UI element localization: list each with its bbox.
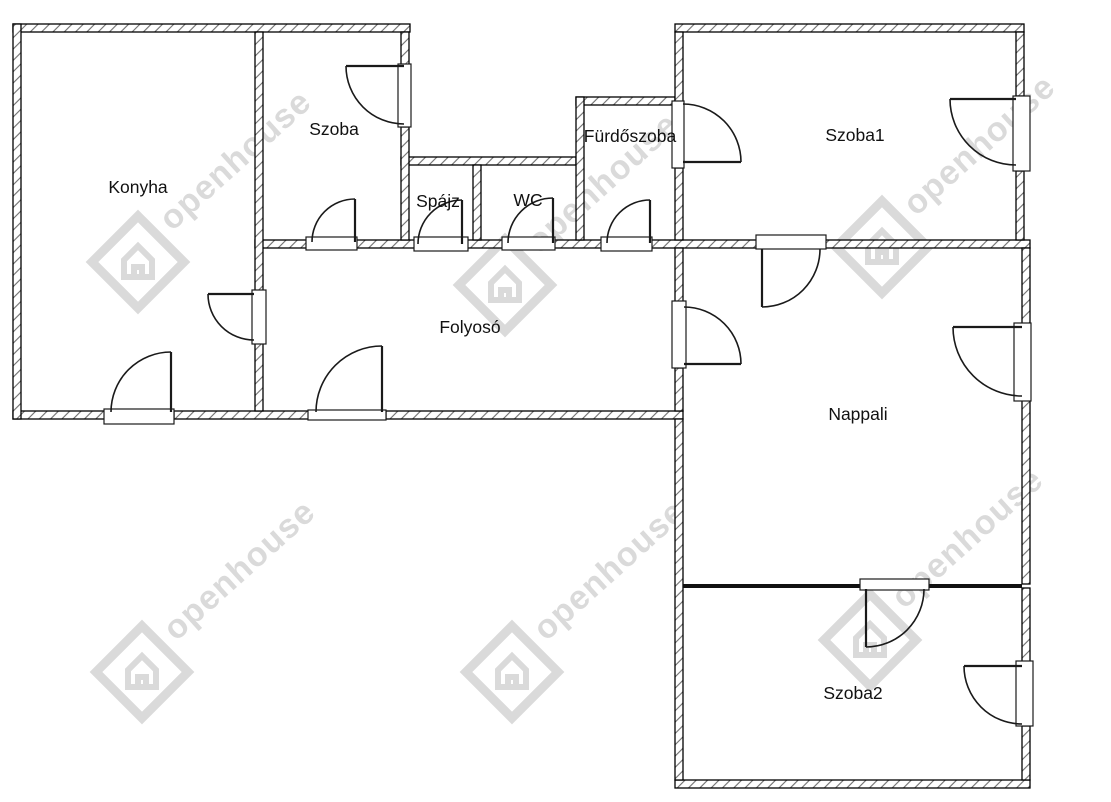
wall-right-szoba2-b [1022, 726, 1030, 780]
door-entrance [316, 346, 382, 412]
wall-bottom-konyha-a [13, 411, 105, 419]
watermark-text: openhouse [152, 82, 319, 238]
wall-szoba1-nappali [825, 240, 1030, 248]
floorplan-canvas: openhouseopenhouseopenhouseopenhouseopen… [0, 0, 1111, 802]
wall-top-furdoszoba [576, 97, 675, 105]
partition-nappali-szoba2-a [683, 584, 862, 588]
wall-folyoso-top-d [554, 240, 603, 248]
house-icon [856, 624, 884, 655]
room-label-wc: WC [513, 190, 542, 210]
door-swing-arc [683, 104, 741, 162]
floorplan-drawing: openhouseopenhouseopenhouseopenhouseopen… [0, 0, 1111, 802]
door-szoba-east [346, 66, 404, 124]
wall-folyoso-nappali-b [675, 368, 683, 411]
door-nappali-balcony [953, 327, 1022, 396]
wall-furdoszoba-szoba1-a [675, 32, 683, 102]
opening-szoba1-balcony-door [1013, 96, 1030, 171]
door-swing-arc [208, 294, 254, 340]
wall-right-szoba1-b [1016, 171, 1024, 240]
watermark: openhouse [96, 492, 323, 718]
wall-right-szoba2-a [1022, 588, 1030, 662]
opening-szoba2-balcony-door [1016, 661, 1033, 726]
wall-folyoso-top-b [356, 240, 416, 248]
wall-bottom-szoba2 [675, 780, 1030, 788]
wall-bottom-folyoso [386, 411, 683, 419]
opening-spajz-door [414, 237, 468, 251]
opening-nappali-balcony-door [1014, 323, 1031, 401]
opening-nappali-szoba2-door [860, 579, 929, 590]
opening-konyha-folyoso-door [252, 290, 266, 344]
door-folyoso-nappali [684, 307, 741, 364]
wall-folyoso-top-c [467, 240, 504, 248]
wall-left-konyha [13, 24, 21, 419]
door-swing-arc [684, 307, 741, 364]
room-label-nappali: Nappali [828, 404, 887, 424]
door-szoba1-nappali [762, 249, 820, 307]
opening-szoba-east-door [398, 64, 411, 127]
opening-szoba1-nappali-door [756, 235, 826, 249]
watermark-text: openhouse [156, 492, 323, 648]
watermark: openhouse [466, 492, 693, 718]
door-swing-arc [953, 327, 1022, 396]
room-label-konyha: Konyha [108, 177, 168, 197]
room-label-furdoszoba: Fürdőszoba [584, 126, 677, 146]
door-swing-arc [312, 199, 355, 242]
door-swing-arc [762, 249, 820, 307]
door-swing-arc [346, 66, 404, 124]
wall-szoba-spajz-b [401, 127, 409, 240]
wall-szoba-spajz-a [401, 32, 409, 65]
opening-entrance-door [308, 410, 386, 420]
wall-right-szoba1-a [1016, 32, 1024, 96]
door-swing-arc [964, 666, 1022, 724]
opening-szoba-folyoso-door [306, 237, 357, 250]
door-szoba-folyoso [312, 199, 355, 242]
house-icon [124, 246, 152, 277]
opening-wc-door [502, 237, 555, 250]
wall-konyha-folyoso-b [255, 343, 263, 411]
partition-nappali-szoba2-b [928, 584, 1022, 588]
room-label-spajz: Spájz [416, 191, 460, 211]
house-icon [491, 269, 519, 300]
watermark-text: openhouse [896, 67, 1063, 223]
door-konyha-exterior [111, 352, 171, 412]
room-label-szoba2: Szoba2 [823, 683, 882, 703]
watermark: openhouse [824, 460, 1051, 686]
house-icon [128, 656, 156, 687]
wall-konyha-szoba-a [255, 32, 263, 291]
opening-konyha-exterior-door [104, 409, 174, 424]
room-label-folyoso: Folyosó [439, 317, 500, 337]
room-label-szoba1: Szoba1 [825, 125, 884, 145]
opening-folyoso-nappali-door [672, 301, 686, 368]
door-furdoszoba-szoba1 [683, 104, 741, 162]
room-label-szoba: Szoba [309, 119, 359, 139]
wall-spajz-wc [473, 165, 481, 240]
wall-furdoszoba-szoba1-b [675, 168, 683, 240]
door-szoba2-balcony [964, 666, 1022, 724]
door-swing-arc [316, 346, 382, 412]
wall-folyoso-top-e [651, 240, 758, 248]
wall-wc-furdoszoba [576, 97, 584, 240]
door-swing-arc [111, 352, 171, 412]
door-konyha-folyoso [208, 294, 254, 340]
opening-furdoszoba-door [601, 237, 652, 251]
watermark-text: openhouse [526, 492, 693, 648]
wall-top-konyha-szoba [13, 24, 410, 32]
wall-folyoso-nappali-a [675, 248, 683, 302]
wall-right-nappali-b [1022, 400, 1030, 584]
house-icon [498, 656, 526, 687]
wall-left-nappali-szoba2 [675, 419, 683, 780]
wall-bottom-konyha-b [174, 411, 309, 419]
wall-right-nappali-a [1022, 248, 1030, 324]
wall-top-szoba1 [675, 24, 1024, 32]
wall-top-spajz-wc [401, 157, 576, 165]
